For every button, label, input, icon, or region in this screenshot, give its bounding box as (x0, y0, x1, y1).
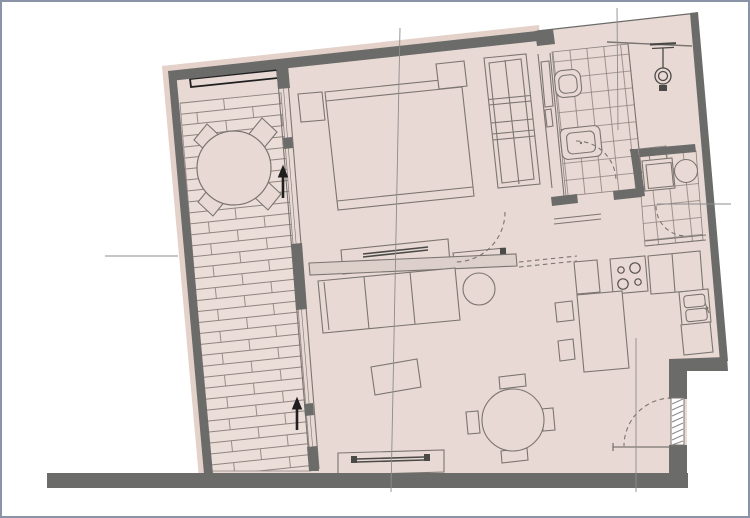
top-wall-stub (535, 29, 555, 46)
dining-chair (466, 411, 480, 434)
stool (558, 339, 575, 361)
round-dining-table (482, 389, 544, 451)
step-wall (669, 357, 728, 371)
round-side-table (463, 273, 495, 305)
stool (555, 301, 574, 322)
counter-top-right (648, 251, 703, 294)
counter-bottom-right (681, 322, 713, 355)
balcony-round-table (197, 131, 271, 205)
cooktop (610, 256, 648, 294)
bottom-wall (47, 473, 688, 488)
nightstand-left (298, 92, 325, 122)
nightstand-right (436, 61, 467, 89)
washbasin (560, 125, 603, 160)
floor-plan-drawing (0, 0, 750, 518)
floor-plan-page (0, 0, 750, 518)
kitchen-sink (679, 289, 711, 325)
peninsula (577, 291, 629, 372)
bathroom-tiles (552, 44, 643, 196)
entrance-wall-upper (669, 371, 687, 399)
double-bed (325, 78, 474, 210)
toilet (554, 69, 583, 99)
counter-left (574, 260, 600, 294)
appliance-round (675, 160, 698, 183)
dining-chair (499, 374, 526, 389)
